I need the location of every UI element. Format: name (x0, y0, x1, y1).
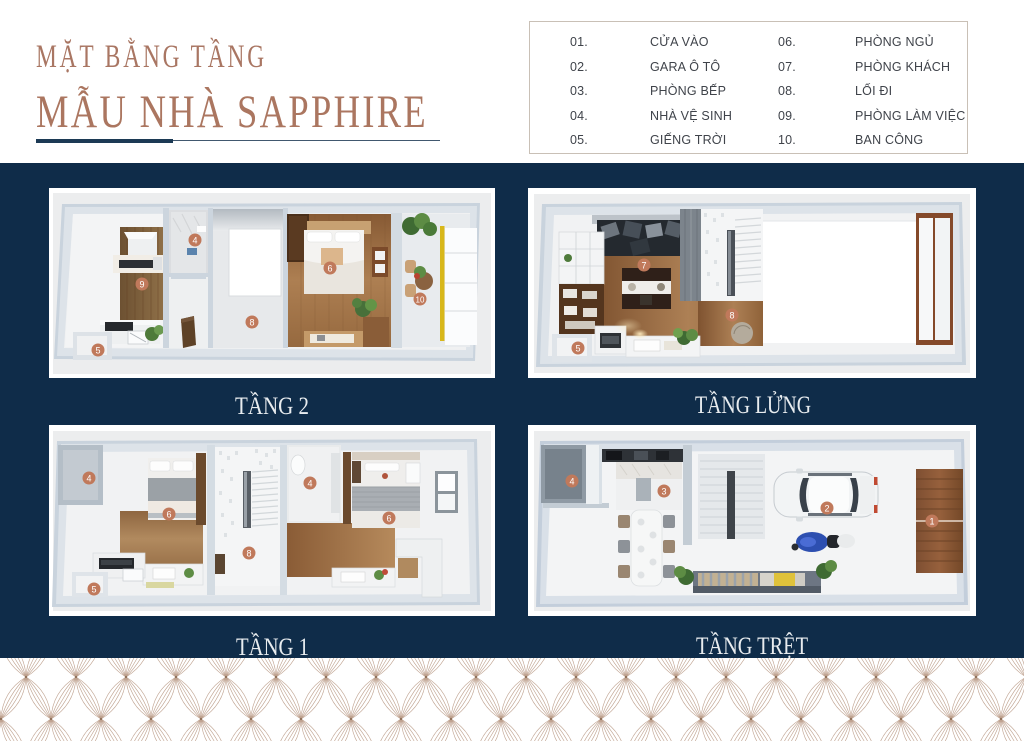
svg-text:MẶT BẰNG TẦNG: MẶT BẰNG TẦNG (36, 37, 267, 74)
svg-text:TẦNG LỬNG: TẦNG LỬNG (695, 390, 811, 419)
svg-text:5: 5 (575, 344, 580, 354)
svg-text:4: 4 (569, 477, 574, 487)
svg-text:6: 6 (327, 264, 332, 274)
svg-text:MẪU NHÀ SAPPHIRE: MẪU NHÀ SAPPHIRE (36, 85, 428, 137)
svg-text:TẦNG TRỆT: TẦNG TRỆT (696, 631, 808, 660)
svg-text:8: 8 (246, 549, 251, 559)
svg-text:8: 8 (249, 318, 254, 328)
svg-text:TẦNG 1: TẦNG 1 (236, 632, 309, 661)
svg-text:TẦNG 2: TẦNG 2 (235, 391, 309, 420)
svg-text:4: 4 (307, 479, 312, 489)
svg-text:7: 7 (641, 261, 646, 271)
svg-text:10: 10 (416, 296, 425, 305)
svg-text:9: 9 (139, 280, 144, 290)
svg-text:8: 8 (729, 311, 734, 321)
svg-text:4: 4 (192, 236, 197, 246)
svg-text:6: 6 (386, 514, 391, 524)
svg-text:6: 6 (166, 510, 171, 520)
svg-text:5: 5 (91, 585, 96, 595)
svg-text:5: 5 (95, 346, 100, 356)
svg-text:1: 1 (929, 517, 934, 527)
svg-text:3: 3 (661, 487, 666, 497)
svg-text:4: 4 (86, 474, 91, 484)
svg-text:2: 2 (824, 504, 829, 514)
